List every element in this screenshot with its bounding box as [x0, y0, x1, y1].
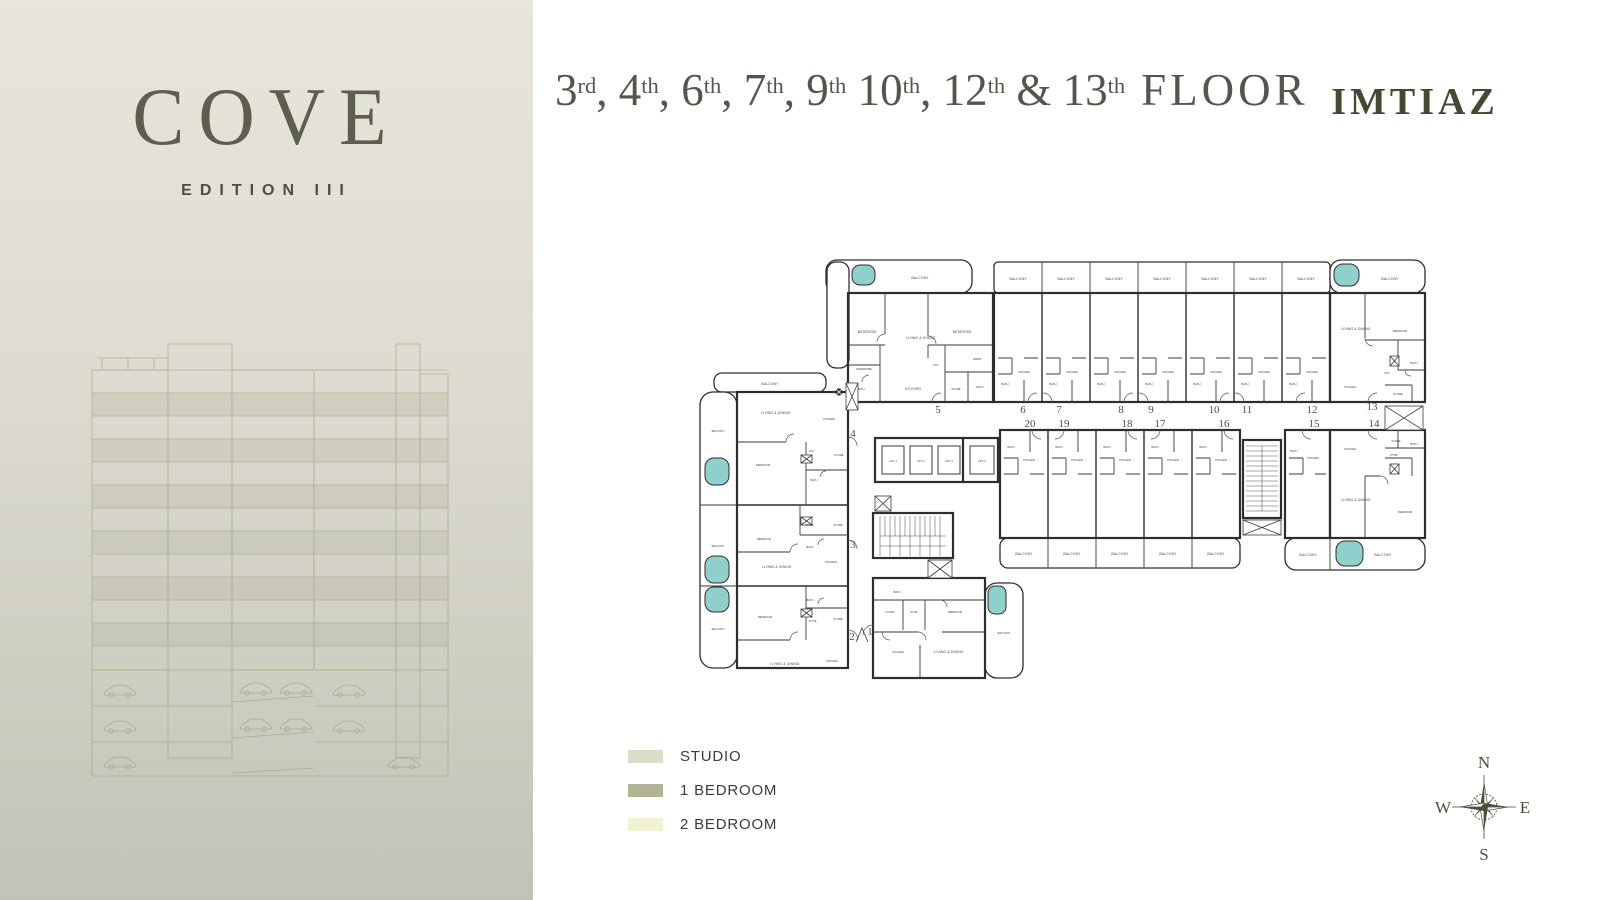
- unit-number-15: 15: [1309, 418, 1321, 430]
- svg-text:WARD: WARD: [973, 357, 981, 361]
- unit-number-12: 12: [1307, 404, 1318, 416]
- compass-south: S: [1479, 845, 1488, 864]
- svg-text:BATH: BATH: [1411, 442, 1418, 446]
- svg-text:BATH: BATH: [1152, 445, 1159, 449]
- svg-text:BALCONY: BALCONY: [1374, 553, 1392, 557]
- svg-text:BALCONY: BALCONY: [1381, 277, 1399, 281]
- building-elevation-art: [88, 318, 452, 780]
- svg-text:KITCHEN: KITCHEN: [825, 560, 837, 564]
- svg-text:BATH: BATH: [1146, 382, 1153, 386]
- svg-text:KITCHEN: KITCHEN: [1162, 370, 1174, 374]
- one-bedroom-swatch: [628, 784, 663, 797]
- unit-number-14: 14: [1369, 418, 1381, 430]
- studios-top-row: BATHKITCHEN BATHKITCHEN BATHKITCHEN BATH…: [994, 293, 1330, 402]
- svg-text:BATH: BATH: [858, 387, 865, 391]
- lift-4-label: LIFT 4: [978, 459, 986, 463]
- svg-text:STORE: STORE: [1391, 439, 1400, 443]
- svg-text:KITCHEN: KITCHEN: [1066, 370, 1078, 374]
- svg-text:KITCHEN: KITCHEN: [826, 659, 838, 663]
- svg-text:LIVING & DINING: LIVING & DINING: [761, 411, 791, 415]
- svg-text:BATH: BATH: [811, 478, 818, 482]
- svg-text:LIVING & DINING: LIVING & DINING: [1341, 327, 1371, 331]
- svg-text:BEDROOM: BEDROOM: [953, 330, 971, 334]
- svg-text:KITCHEN: KITCHEN: [1258, 370, 1270, 374]
- page-title-floors: 3rd, 4th, 6th, 7th, 9th 10th, 12th & 13t…: [555, 64, 1295, 116]
- compass-star: [1452, 775, 1516, 839]
- svg-text:LIVING & DINING: LIVING & DINING: [906, 336, 936, 340]
- floor-word: FLOOR: [1141, 65, 1309, 115]
- svg-text:BEDROOM: BEDROOM: [756, 463, 771, 467]
- svg-text:BEDROOM: BEDROOM: [1398, 510, 1413, 514]
- studios-bottom-row: BATHKITCHEN BATHKITCHEN BATHKITCHEN BATH…: [1000, 430, 1240, 538]
- svg-text:BALCONY: BALCONY: [1009, 277, 1027, 281]
- svg-text:LIVING & DINING: LIVING & DINING: [762, 565, 792, 569]
- unit-number-16: 16: [1219, 418, 1231, 430]
- svg-text:KITCHEN: KITCHEN: [823, 417, 835, 421]
- unit-number-3: 3: [850, 539, 856, 551]
- svg-text:BATH: BATH: [894, 590, 901, 594]
- unit-5-2bedroom: BEDROOM LIVING & DINING BEDROOM WARDROBE…: [848, 293, 993, 402]
- svg-text:KITCHEN: KITCHEN: [1119, 458, 1131, 462]
- svg-text:BEDROOM: BEDROOM: [948, 610, 963, 614]
- svg-text:LIVING & DINING: LIVING & DINING: [770, 662, 800, 666]
- svg-text:BALCONY: BALCONY: [712, 627, 725, 631]
- svg-text:BALCONY: BALCONY: [1153, 277, 1171, 281]
- svg-text:BALCONY: BALCONY: [1105, 277, 1123, 281]
- unit-number-5: 5: [935, 404, 941, 416]
- svg-text:BALCONY: BALCONY: [1057, 277, 1075, 281]
- svg-text:KITCHEN: KITCHEN: [1167, 458, 1179, 462]
- unit-number-2: 2: [849, 631, 855, 643]
- svg-text:BALCONY: BALCONY: [712, 544, 725, 548]
- svg-text:BATH: BATH: [1050, 382, 1057, 386]
- left-wing-1bedroom-units: LIVING & DINING KITCHEN BEDROOM FOY STOR…: [737, 392, 848, 668]
- brand-panel: COVE EDITION III: [0, 0, 533, 900]
- svg-text:BALCONY: BALCONY: [1299, 553, 1317, 557]
- svg-text:KITCHEN: KITCHEN: [1344, 385, 1356, 389]
- svg-text:LIVING & DINING: LIVING & DINING: [1341, 498, 1371, 502]
- svg-text:STORE: STORE: [833, 523, 842, 527]
- lift-2-label: LIFT 2: [917, 459, 925, 463]
- compass-rose: N W E S: [1432, 750, 1536, 864]
- unit-number-17: 17: [1155, 418, 1167, 430]
- compass-west: W: [1435, 798, 1452, 817]
- unit-number-11: 11: [1242, 404, 1253, 416]
- svg-text:FOY: FOY: [1384, 371, 1390, 375]
- svg-text:BALCONY: BALCONY: [998, 631, 1011, 635]
- svg-text:WARDROBE: WARDROBE: [856, 367, 872, 371]
- svg-text:FOY: FOY: [933, 363, 939, 367]
- svg-text:BALCONY: BALCONY: [1207, 552, 1225, 556]
- svg-text:BATH: BATH: [1104, 445, 1111, 449]
- legend-item-1bedroom: 1 BEDROOM: [628, 783, 777, 798]
- legend-item-studio: STUDIO: [628, 749, 777, 764]
- two-bedroom-swatch: [628, 818, 663, 831]
- compass-north: N: [1478, 753, 1490, 772]
- svg-text:KITCHEN: KITCHEN: [905, 387, 921, 391]
- svg-text:BATH: BATH: [1194, 382, 1201, 386]
- compass-east: E: [1520, 798, 1530, 817]
- svg-text:BEDROOM: BEDROOM: [758, 615, 773, 619]
- unit-number-4: 4: [850, 428, 856, 440]
- studio-entry-doors: [1028, 393, 1305, 402]
- svg-text:STORE: STORE: [834, 453, 843, 457]
- svg-text:BATH: BATH: [807, 598, 814, 602]
- brand-name: COVE: [0, 70, 533, 164]
- unit-15-studio: BATH KITCHEN: [1285, 430, 1330, 538]
- svg-text:BATH: BATH: [807, 545, 814, 549]
- svg-text:BALCONY: BALCONY: [712, 429, 725, 433]
- svg-text:LAUND: LAUND: [885, 610, 894, 614]
- studio-room-labels: BATHKITCHEN BATHKITCHEN BATHKITCHEN BATH…: [1002, 370, 1318, 386]
- svg-text:STORE: STORE: [833, 617, 842, 621]
- svg-text:BATH: BATH: [1291, 449, 1298, 453]
- unit-number-13: 13: [1367, 401, 1379, 413]
- svg-text:KITCHEN: KITCHEN: [1215, 458, 1227, 462]
- brochure-page: COVE EDITION III: [0, 0, 1600, 900]
- svg-text:BATH: BATH: [1290, 382, 1297, 386]
- unit-1-1bedroom: BATH LAUND P.TOIL BEDROOM KITCHEN LIVING…: [873, 578, 985, 678]
- svg-text:P.TOIL: P.TOIL: [806, 523, 815, 527]
- svg-text:BALCONY: BALCONY: [1249, 277, 1267, 281]
- unit-13-1bedroom: LIVING & DINING BEDROOM BATH FOY KITCHEN…: [1330, 293, 1425, 402]
- svg-text:STORE: STORE: [951, 387, 960, 391]
- svg-text:FOY: FOY: [809, 449, 815, 453]
- svg-text:BATH: BATH: [977, 385, 984, 389]
- one-bedroom-label: 1 BEDROOM: [680, 782, 777, 799]
- svg-text:BALCONY: BALCONY: [1111, 552, 1129, 556]
- floor-plan: BALCONY BALCONY BALCONY BALCONY BALCONY …: [690, 250, 1430, 685]
- studio-entry-doors: [1032, 430, 1233, 439]
- svg-text:KITCHEN: KITCHEN: [1114, 370, 1126, 374]
- two-bedroom-label: 2 BEDROOM: [680, 816, 777, 833]
- svg-text:KITCHEN: KITCHEN: [1071, 458, 1083, 462]
- svg-text:BEDROOM: BEDROOM: [757, 537, 772, 541]
- svg-text:STORE: STORE: [1393, 392, 1402, 396]
- svg-text:KITCHEN: KITCHEN: [1023, 458, 1035, 462]
- studio-swatch: [628, 750, 663, 763]
- lift-3-label: LIFT 3: [945, 459, 953, 463]
- unit-number-8: 8: [1118, 404, 1124, 416]
- lift-1-label: LIFT 1: [889, 459, 897, 463]
- studio-label: STUDIO: [680, 748, 741, 765]
- svg-text:P.TOIL: P.TOIL: [1390, 453, 1399, 457]
- svg-text:BEDROOM: BEDROOM: [1393, 329, 1408, 333]
- unit-number-19: 19: [1059, 418, 1071, 430]
- unit-number-10: 10: [1209, 404, 1221, 416]
- brand-edition: EDITION III: [0, 182, 533, 200]
- svg-text:BALCONY: BALCONY: [761, 382, 779, 386]
- stair-west: [873, 513, 953, 558]
- svg-text:KITCHEN: KITCHEN: [1307, 456, 1319, 460]
- lift-bank: LIFT 1 LIFT 2 LIFT 3 LIFT 4: [875, 438, 998, 482]
- svg-text:BATH: BATH: [1242, 382, 1249, 386]
- svg-text:BALCONY: BALCONY: [1159, 552, 1177, 556]
- unit-number-18: 18: [1122, 418, 1134, 430]
- unit-number-6: 6: [1020, 404, 1026, 416]
- studio-room-labels: BATHKITCHEN BATHKITCHEN BATHKITCHEN BATH…: [1008, 445, 1227, 462]
- legend-item-2bedroom: 2 BEDROOM: [628, 817, 777, 832]
- svg-text:KITCHEN: KITCHEN: [1344, 447, 1356, 451]
- svg-text:BALCONY: BALCONY: [1297, 277, 1315, 281]
- svg-text:BALCONY: BALCONY: [1015, 552, 1033, 556]
- svg-text:BATH: BATH: [1200, 445, 1207, 449]
- svg-text:BATH: BATH: [1002, 382, 1009, 386]
- unit-number-20: 20: [1025, 418, 1037, 430]
- developer-logo: IMTIAZ: [1325, 80, 1505, 124]
- unit-number-1: 1: [867, 626, 873, 638]
- unit-number-9: 9: [1148, 404, 1154, 416]
- svg-text:LIVING & DINING: LIVING & DINING: [934, 650, 964, 654]
- svg-text:BATH: BATH: [1008, 445, 1015, 449]
- stair-east: [1243, 440, 1281, 535]
- svg-text:BATH: BATH: [1056, 445, 1063, 449]
- brand-block: COVE EDITION III: [0, 72, 533, 200]
- svg-text:BALCONY: BALCONY: [1063, 552, 1081, 556]
- svg-text:KITCHEN: KITCHEN: [1210, 370, 1222, 374]
- svg-text:P.TOIL: P.TOIL: [809, 619, 818, 623]
- svg-text:BEDROOM: BEDROOM: [858, 330, 876, 334]
- unit-number-7: 7: [1056, 404, 1062, 416]
- svg-text:P.TOIL: P.TOIL: [910, 610, 919, 614]
- svg-text:BALCONY: BALCONY: [1201, 277, 1219, 281]
- svg-text:BATH: BATH: [1411, 361, 1418, 365]
- svg-text:BATH: BATH: [1098, 382, 1105, 386]
- room-label-balcony: BALCONY: [911, 276, 929, 280]
- unit-14-1bedroom: KITCHEN STORE BATH P.TOIL LIVING & DININ…: [1330, 430, 1425, 538]
- legend: STUDIO 1 BEDROOM 2 BEDROOM: [628, 749, 777, 851]
- svg-text:KITCHEN: KITCHEN: [1306, 370, 1318, 374]
- svg-text:KITCHEN: KITCHEN: [1018, 370, 1030, 374]
- svg-text:KITCHEN: KITCHEN: [892, 650, 904, 654]
